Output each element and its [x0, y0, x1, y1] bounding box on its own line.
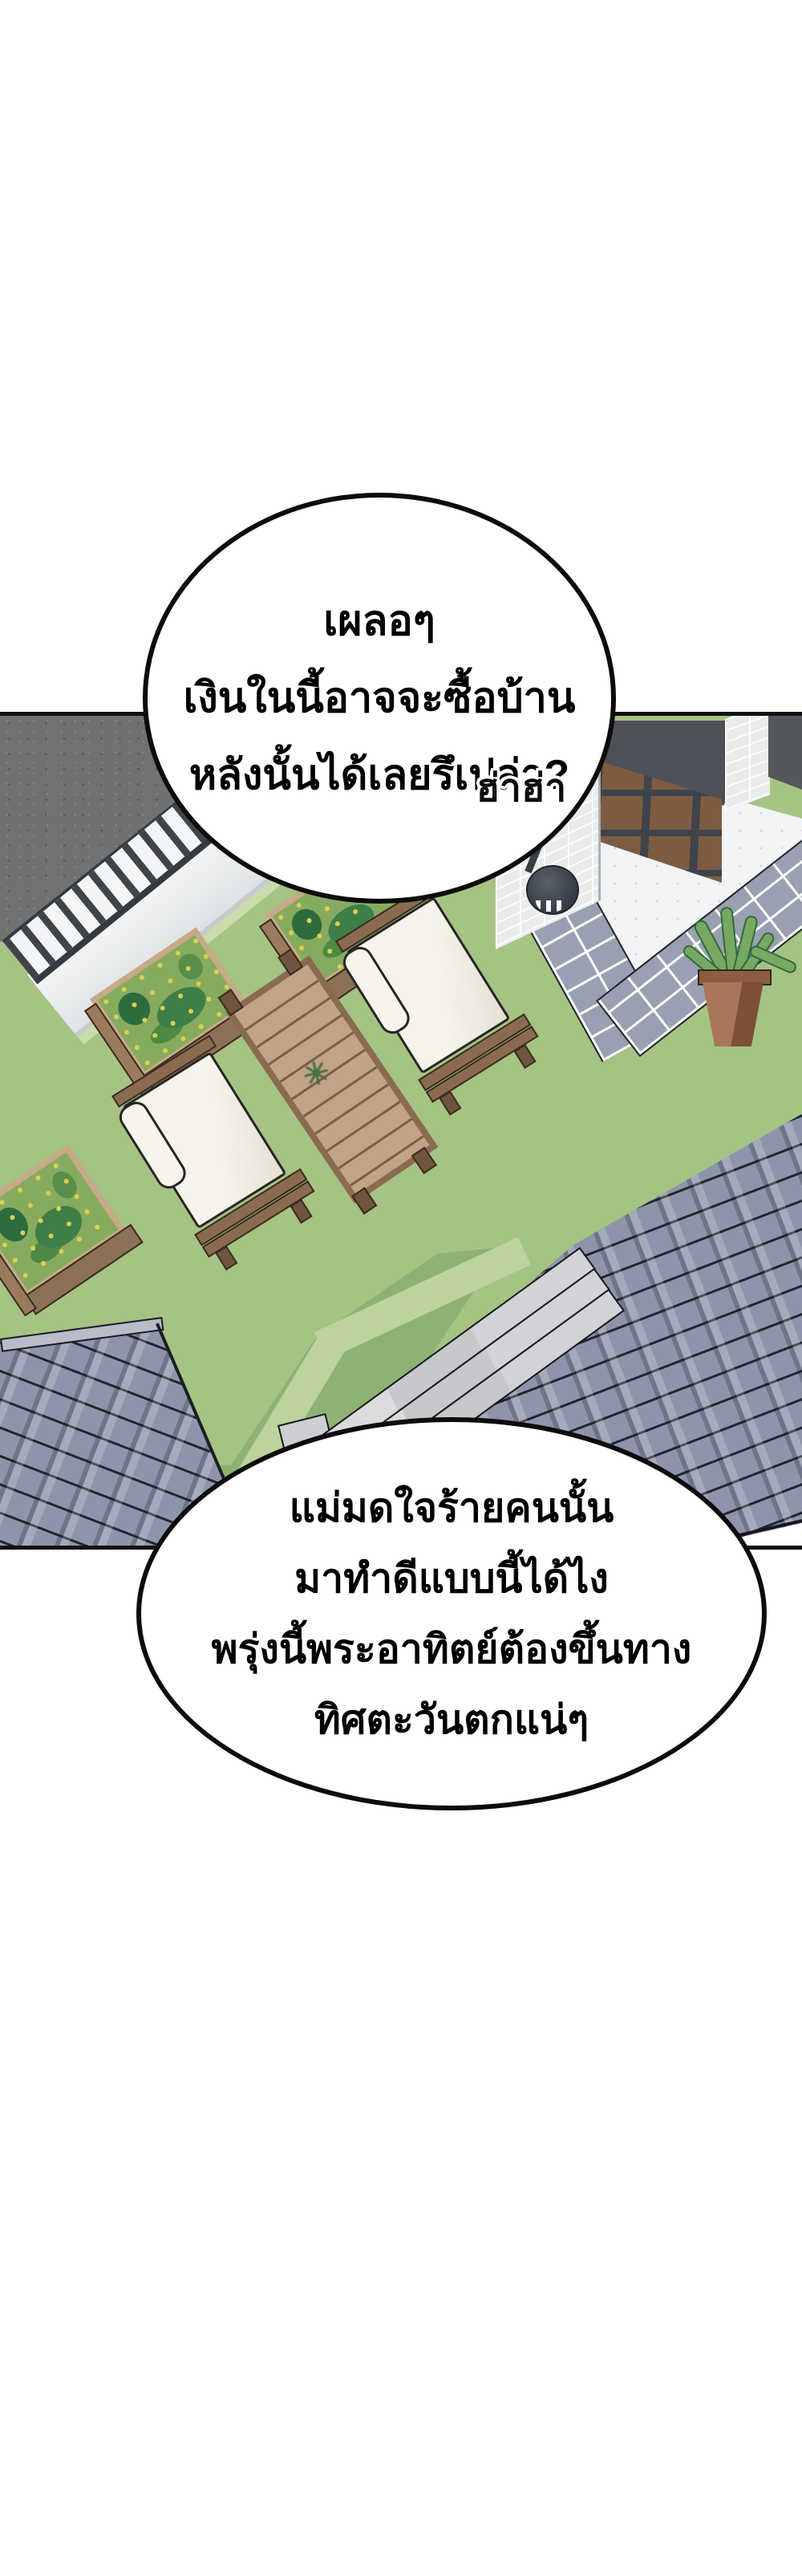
bubble2-line-4: ทิศตะวันตกแน่ๆ — [314, 1684, 589, 1755]
page-background: ✳ — [0, 0, 802, 2576]
deck-leg — [351, 1187, 377, 1214]
bubble2-line-2: มาทำดีแบบนี้ได้ไง — [294, 1543, 609, 1614]
pot-body — [703, 982, 764, 1046]
planter-box-3 — [0, 1144, 126, 1298]
speech-bubble-1: เผลอๆ เงินในนี้อาจจะซื้อบ้าน หลังนั้นได้… — [143, 493, 616, 904]
bubble1-line-1: เผลอๆ — [323, 583, 435, 660]
laugh-sfx-text: ฮ่าฮ่า — [433, 758, 610, 819]
speech-bubble-2: แม่มดใจร้ายคนนั้น มาทำดีแบบนี้ได้ไง พรุ่… — [136, 1417, 767, 1810]
bubble2-line-1: แม่มดใจร้ายคนนั้น — [290, 1473, 614, 1543]
bubble2-line-3: พรุ่งนี้พระอาทิตย์ต้องขึ้นทาง — [212, 1614, 692, 1684]
lamp-bowl — [526, 865, 579, 915]
potted-plant — [678, 900, 798, 1061]
deck-plant-sprig: ✳ — [300, 1055, 334, 1093]
lounge-chair-2 — [122, 1051, 287, 1229]
white-brick-pillar — [725, 712, 770, 811]
bubble1-line-2: เงินในนี้อาจจะซื้อบ้าน — [184, 660, 576, 737]
deck-leg — [411, 1147, 437, 1174]
